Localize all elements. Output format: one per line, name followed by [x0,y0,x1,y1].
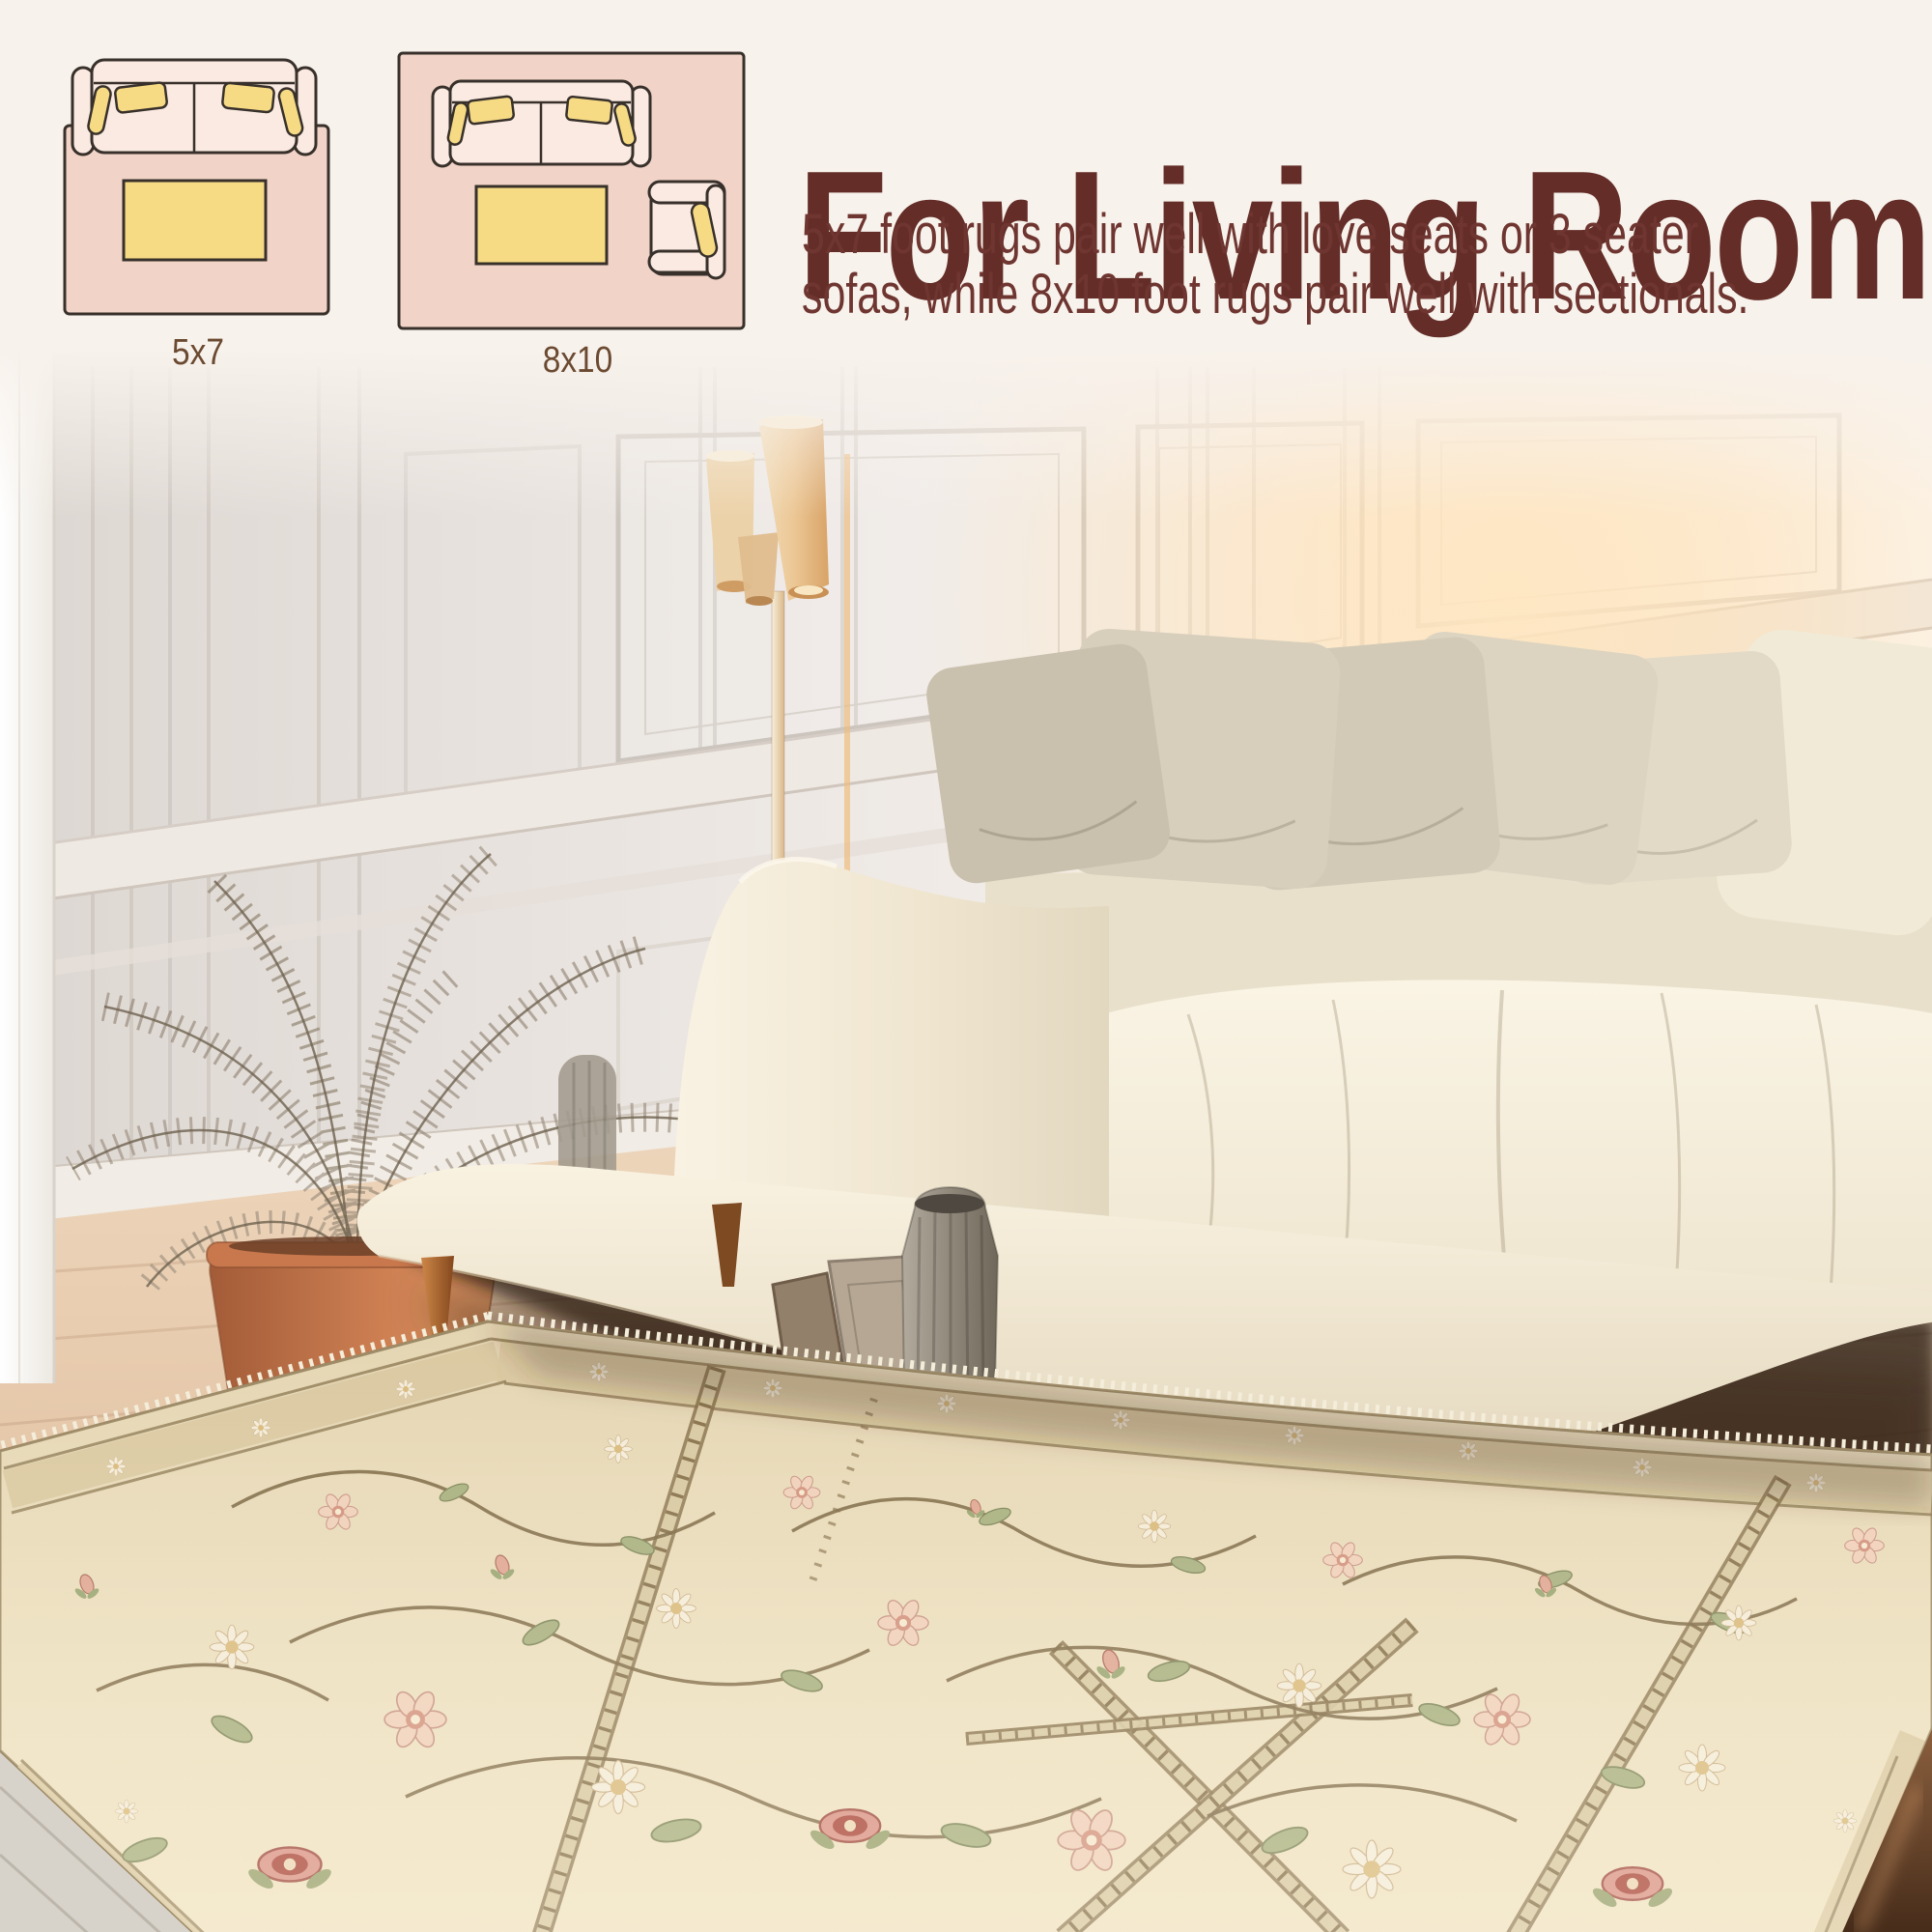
description-line-2: sofas, while 8x10 foot rugs pair well wi… [802,265,1748,325]
sofa-top-view [433,81,650,166]
rug-size-diagrams [0,0,773,386]
description-text: 5x7 foot rugs pair well with love seats … [802,205,1748,325]
infographic-canvas: For Living Room 5x7 foot rugs pair well … [0,0,1932,1932]
description-line-1: 5x7 foot rugs pair well with love seats … [802,205,1748,265]
loveseat-top-view [72,60,316,155]
lamp-pole [772,591,784,881]
diagram-label-5x7: 5x7 [104,332,292,374]
coffee-table-5x7 [124,181,266,260]
diagram-label-8x10: 8x10 [484,340,671,382]
coffee-table-8x10 [476,186,607,264]
diagram-5x7-floorplan [65,60,328,314]
armchair-top-view [649,182,724,278]
diagram-8x10-floorplan [399,53,744,328]
